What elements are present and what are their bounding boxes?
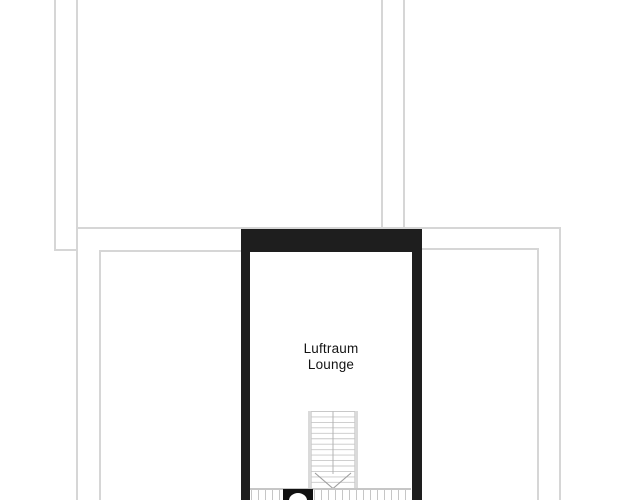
room-label: Luftraum Lounge <box>242 341 420 373</box>
room-label-line2: Lounge <box>242 357 420 373</box>
outline-upper-outer-right <box>403 0 405 229</box>
room-label-line1: Luftraum <box>242 341 420 357</box>
outline-lowerright-inner-right <box>537 248 539 500</box>
outline-lowerright-inner-top <box>421 248 538 250</box>
outline-upper-inner-right <box>381 0 383 228</box>
circle-icon <box>289 493 307 500</box>
outline-upper-left-closure <box>54 249 78 251</box>
wall-top <box>241 229 422 252</box>
staircase-icon <box>308 410 358 490</box>
column-fixture <box>283 489 313 500</box>
outline-lowerleft-inner-left <box>99 250 101 500</box>
bottom-tick-pattern <box>251 490 411 500</box>
outline-lowerright-outer-right <box>559 227 561 500</box>
chevron-down-icon <box>315 473 351 489</box>
outline-upper-outer-left <box>54 0 56 250</box>
outline-lowerleft-inner-top <box>99 250 242 252</box>
floor-plan-canvas: Luftraum Lounge <box>0 0 640 500</box>
